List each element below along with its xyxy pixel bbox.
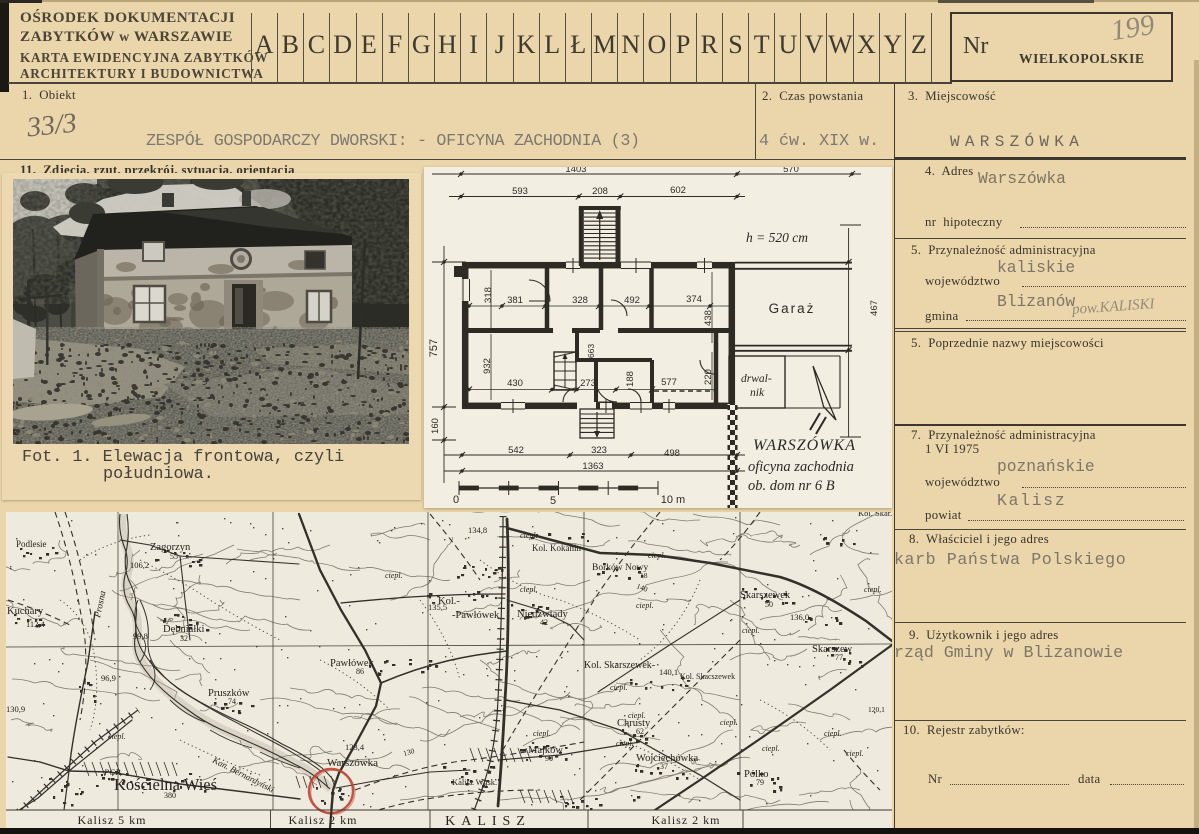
svg-text:-Pawłówek: -Pawłówek (452, 610, 500, 621)
svg-text:467: 467 (869, 300, 880, 316)
svg-text:drwal-: drwal- (741, 373, 772, 385)
svg-text:663: 663 (586, 344, 596, 358)
svg-text:220: 220 (703, 369, 714, 385)
svg-text:Kol. Skar.: Kol. Skar. (858, 512, 892, 518)
svg-text:Kalisz Wąsk.: Kalisz Wąsk. (452, 777, 497, 787)
svg-text:492: 492 (624, 295, 640, 306)
svg-text:ciepl.: ciepl. (824, 729, 842, 738)
svg-text:106,2: 106,2 (130, 560, 149, 570)
svg-text:74: 74 (228, 697, 236, 706)
svg-text:37: 37 (660, 762, 668, 771)
svg-text:ciepl.: ciepl. (385, 571, 403, 580)
svg-text:1363: 1363 (582, 461, 603, 472)
svg-text:577: 577 (661, 377, 677, 388)
svg-text:KALISZ: KALISZ (445, 814, 531, 829)
svg-text:160: 160 (430, 418, 441, 434)
svg-text:602: 602 (670, 185, 686, 196)
svg-text:381: 381 (507, 295, 523, 306)
svg-text:ciepl.: ciepl. (520, 531, 538, 540)
svg-text:ciepl.: ciepl. (520, 585, 538, 594)
svg-text:ciepl.: ciepl. (616, 739, 634, 748)
svg-text:570: 570 (783, 167, 799, 175)
svg-text:Pawłówek: Pawłówek (330, 658, 374, 669)
svg-text:ciepl.: ciepl. (610, 683, 628, 692)
svg-text:Kalisz 2 km: Kalisz 2 km (289, 813, 358, 827)
svg-text:430: 430 (507, 378, 523, 389)
svg-text:0: 0 (453, 494, 459, 506)
svg-text:ciepl.: ciepl. (864, 585, 882, 594)
svg-text:nik: nik (750, 387, 765, 399)
svg-text:Kuchary: Kuchary (7, 606, 44, 617)
svg-text:ciepl.: ciepl. (533, 729, 551, 738)
svg-text:498: 498 (664, 448, 680, 459)
svg-text:ob. dom nr 6 B: ob. dom nr 6 B (748, 478, 835, 494)
svg-text:ciepl.: ciepl. (762, 744, 780, 753)
svg-text:380: 380 (164, 791, 176, 800)
svg-text:135,5: 135,5 (428, 602, 447, 612)
svg-text:Kol. Kokanin: Kol. Kokanin (532, 543, 581, 553)
svg-text:ciepl.: ciepl. (628, 711, 646, 720)
svg-text:ciepl.: ciepl. (636, 601, 654, 610)
svg-text:542: 542 (508, 445, 524, 456)
svg-text:32: 32 (180, 634, 188, 643)
svg-text:10 m: 10 m (661, 494, 685, 506)
svg-text:757: 757 (428, 339, 440, 357)
svg-text:PGR.: PGR. (103, 767, 123, 777)
svg-text:438: 438 (703, 310, 714, 326)
svg-text:ciepl.: ciepl. (648, 551, 666, 560)
svg-text:Podlesie: Podlesie (16, 539, 47, 549)
svg-text:140,1: 140,1 (659, 667, 678, 677)
svg-text:ciepl.: ciepl. (742, 626, 760, 635)
svg-text:ciepl.: ciepl. (108, 732, 126, 741)
svg-text:42: 42 (540, 618, 548, 627)
svg-text:120,1: 120,1 (868, 705, 885, 714)
svg-text:77: 77 (835, 653, 843, 662)
svg-text:96,9: 96,9 (101, 673, 116, 683)
svg-text:112,4: 112,4 (26, 619, 46, 629)
svg-text:h = 520 cm: h = 520 cm (746, 230, 808, 245)
svg-text:Kol. Skarszewek-: Kol. Skarszewek- (584, 660, 655, 671)
svg-text:ciepl.: ciepl. (846, 749, 864, 758)
svg-text:ciepl.: ciepl. (720, 718, 738, 727)
svg-text:130,9: 130,9 (6, 704, 25, 714)
svg-text:oficyna zachodnia: oficyna zachodnia (748, 459, 854, 475)
svg-text:136,0: 136,0 (790, 612, 809, 622)
svg-text:50: 50 (765, 600, 773, 609)
svg-text:123,4: 123,4 (345, 742, 365, 752)
svg-text:86: 86 (356, 667, 364, 676)
svg-text:Kalisz 2 km: Kalisz 2 km (652, 813, 721, 827)
svg-text:Kalisz 5 km: Kalisz 5 km (78, 813, 147, 827)
svg-text:208: 208 (592, 186, 608, 197)
svg-text:1403: 1403 (565, 167, 586, 175)
svg-text:Garaż: Garaż (769, 301, 816, 316)
svg-text:90: 90 (545, 754, 553, 763)
svg-text:593: 593 (512, 186, 528, 197)
svg-text:55: 55 (170, 552, 178, 561)
svg-text:62: 62 (636, 727, 644, 736)
svg-text:5: 5 (550, 495, 556, 507)
svg-text:WARSZÓWKA: WARSZÓWKA (753, 435, 856, 454)
svg-text:328: 328 (572, 295, 588, 306)
svg-text:79: 79 (756, 778, 764, 787)
svg-text:99,8: 99,8 (133, 631, 148, 641)
svg-text:932: 932 (482, 358, 493, 374)
svg-text:Warszówka: Warszówka (327, 757, 378, 769)
svg-text:318: 318 (483, 287, 494, 303)
svg-text:188: 188 (625, 371, 636, 387)
svg-text:Kol. Skacszewek: Kol. Skacszewek (680, 672, 735, 681)
svg-text:374: 374 (686, 294, 702, 305)
svg-text:134,8: 134,8 (468, 525, 487, 535)
svg-text:18: 18 (640, 571, 648, 580)
svg-text:273: 273 (580, 378, 596, 389)
svg-text:323: 323 (591, 445, 607, 456)
svg-text:Skarszew: Skarszew (812, 644, 853, 655)
